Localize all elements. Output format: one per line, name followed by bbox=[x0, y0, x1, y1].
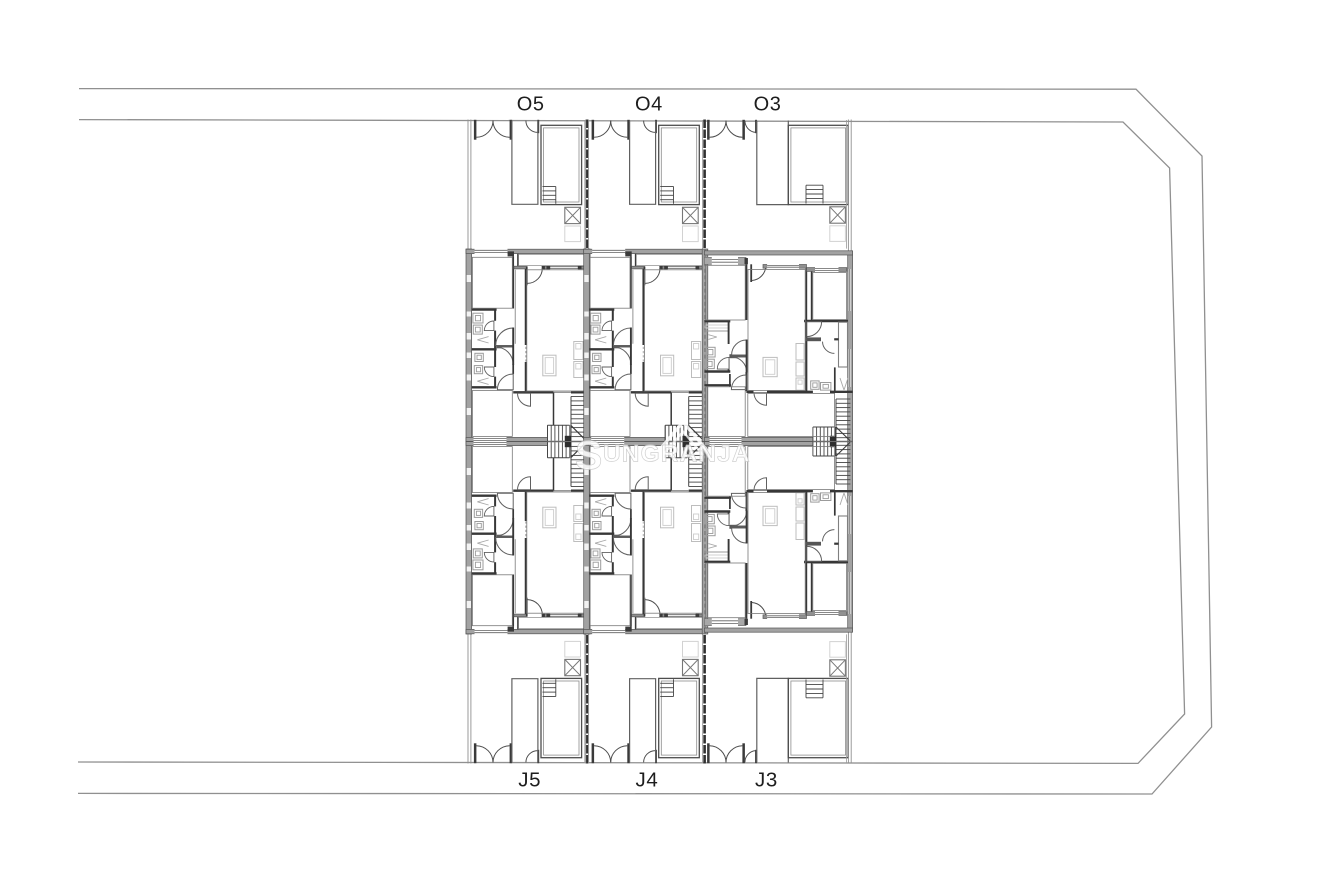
svg-text:J4: J4 bbox=[635, 768, 658, 791]
svg-text:S: S bbox=[575, 432, 604, 478]
svg-text:O3: O3 bbox=[754, 94, 782, 116]
svg-text:UNGRANJA: UNGRANJA bbox=[603, 441, 751, 468]
svg-text:J3: J3 bbox=[755, 768, 778, 791]
svg-text:O5: O5 bbox=[517, 94, 545, 116]
svg-text:J5: J5 bbox=[518, 768, 541, 791]
svg-text:O4: O4 bbox=[635, 94, 663, 116]
